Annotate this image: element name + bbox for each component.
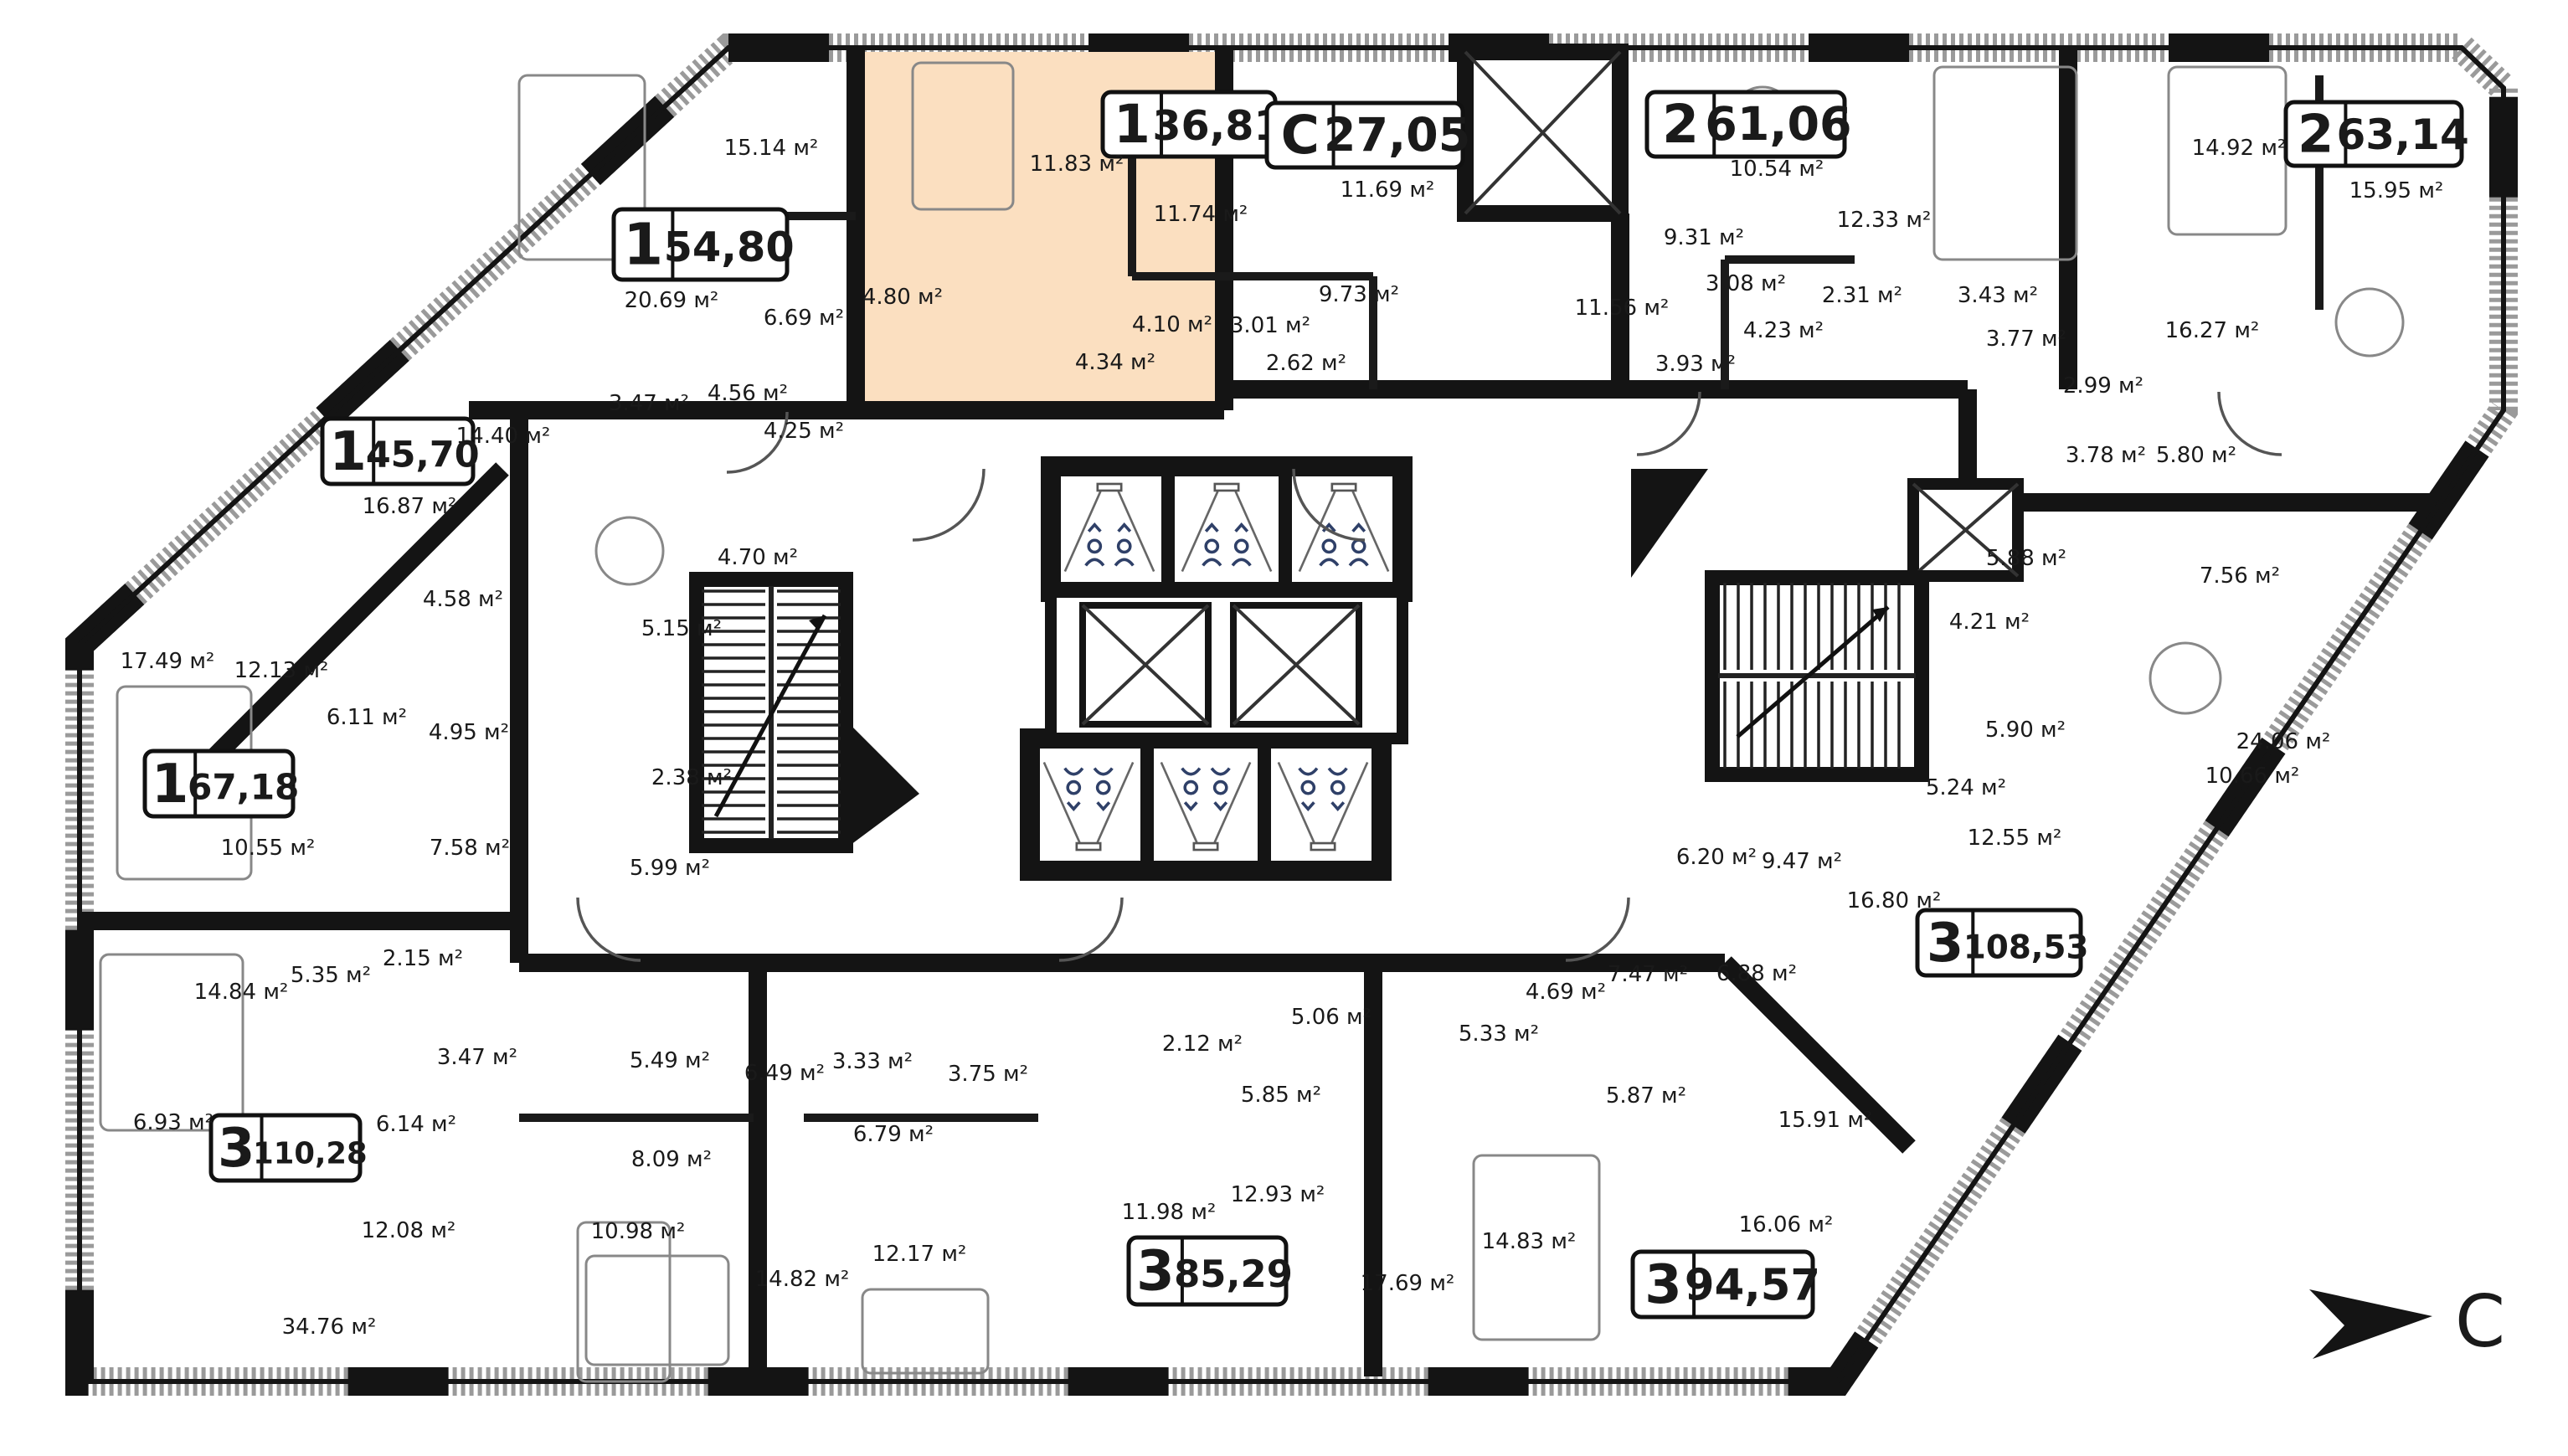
room-area-label: 14.40 м² — [456, 424, 551, 449]
room-area-label: 11.83 м² — [1030, 152, 1124, 177]
room-area-label: 4.25 м² — [764, 419, 844, 444]
room-area-label: 4.58 м² — [423, 587, 503, 612]
room-area-label: 12.08 м² — [362, 1218, 456, 1243]
room-area-label: 10.98 м² — [591, 1219, 686, 1244]
room-area-label: 11.98 м² — [1122, 1200, 1217, 1225]
room-area-label: 8.09 м² — [631, 1147, 712, 1172]
room-area-label: 17.49 м² — [121, 649, 215, 674]
room-area-label: 2.62 м² — [1266, 351, 1346, 376]
room-area-label: 16.27 м² — [2165, 318, 2260, 343]
room-area-label: 4.80 м² — [862, 285, 943, 310]
unit-type: 3 — [1644, 1254, 1682, 1316]
room-area-label: 3.33 м² — [832, 1049, 913, 1074]
unit-badge-61,06[interactable]: 261,06 — [1647, 92, 1852, 157]
room-area-label: 3.43 м² — [1958, 283, 2038, 308]
room-area-label: 3.75 м² — [948, 1062, 1028, 1087]
room-area-label: 5.15 м² — [641, 616, 722, 641]
unit-badge-108,53[interactable]: 3108,53 — [1917, 910, 2088, 975]
room-area-label: 2.15 м² — [383, 946, 463, 971]
unit-badge-110,28[interactable]: 3110,28 — [211, 1115, 368, 1181]
unit-area: 108,53 — [1963, 929, 2089, 967]
room-area-label: 5.87 м² — [1606, 1083, 1686, 1109]
unit-type: 3 — [218, 1118, 255, 1180]
room-area-label: 3.47 м² — [437, 1045, 517, 1070]
north-label: С — [2455, 1280, 2505, 1364]
room-area-label: 12.13 м² — [234, 658, 329, 683]
floor-plan-canvas: 154,80136,81С27,05261,06263,14145,70167,… — [0, 0, 2568, 1452]
room-area-label: 3.78 м² — [2066, 443, 2146, 468]
room-area-label: 12.93 м² — [1231, 1182, 1325, 1207]
room-area-label: 10.54 м² — [1730, 157, 1824, 182]
room-area-label: 4.34 м² — [1075, 350, 1155, 375]
unit-area: 94,57 — [1685, 1261, 1820, 1311]
room-area-label: 5.33 м² — [1459, 1021, 1539, 1047]
room-area-label: 2.12 м² — [1162, 1032, 1243, 1057]
unit-type: 2 — [1662, 93, 1699, 155]
room-area-label: 5.24 м² — [1926, 775, 2006, 800]
room-area-label: 12.55 м² — [1968, 826, 2062, 851]
room-area-label: 7.58 м² — [430, 836, 510, 861]
room-area-label: 6.20 м² — [1676, 845, 1757, 870]
room-area-label: 6.79 м² — [853, 1122, 934, 1147]
unit-area: 61,06 — [1705, 98, 1851, 152]
room-area-label: 5.80 м² — [2156, 443, 2236, 468]
unit-area: 36,81 — [1152, 101, 1282, 150]
unit-type: С — [1281, 104, 1320, 166]
room-area-label: 2.31 м² — [1822, 283, 1902, 308]
room-area-label: 5.06 м² — [1291, 1005, 1371, 1030]
unit-area: 110,28 — [253, 1137, 367, 1171]
room-area-label: 15.14 м² — [724, 136, 819, 161]
room-area-label: 15.91 м² — [1778, 1108, 1873, 1133]
room-area-label: 7.47 м² — [1608, 962, 1688, 987]
room-area-label: 3.01 м² — [1230, 313, 1310, 338]
unit-type: 1 — [1114, 93, 1150, 155]
room-area-label: 5.88 м² — [1986, 546, 2066, 571]
room-area-label: 3.93 м² — [1655, 352, 1736, 377]
room-area-label: 20.69 м² — [625, 288, 719, 313]
room-area-label: 34.76 м² — [282, 1315, 377, 1340]
room-area-label: 6.93 м² — [133, 1110, 214, 1135]
floor-plan: 154,80136,81С27,05261,06263,14145,70167,… — [0, 0, 2568, 1452]
room-area-label: 6.14 м² — [376, 1112, 456, 1137]
room-area-label: 3.08 м² — [1706, 271, 1786, 296]
room-area-label: 4.70 м² — [718, 545, 798, 570]
room-area-label: 9.73 м² — [1319, 282, 1399, 307]
unit-badge-67,18[interactable]: 167,18 — [145, 751, 299, 816]
room-area-label: 16.06 м² — [1739, 1212, 1834, 1237]
room-area-label: 6.88 м² — [1716, 961, 1797, 986]
room-area-label: 5.99 м² — [630, 856, 710, 881]
room-area-label: 5.49 м² — [630, 1048, 710, 1073]
room-area-label: 16.87 м² — [363, 494, 457, 519]
room-area-label: 4.21 м² — [1949, 610, 2030, 635]
staircase — [1712, 578, 1922, 774]
room-area-label: 15.95 м² — [2349, 178, 2444, 203]
room-area-label: 11.74 м² — [1154, 202, 1248, 227]
unit-type: 1 — [152, 754, 189, 815]
room-area-label: 24.06 м² — [2236, 729, 2331, 754]
room-area-label: 5.90 м² — [1985, 718, 2066, 743]
room-area-label: 11.56 м² — [1575, 296, 1670, 321]
unit-badge-63,14[interactable]: 263,14 — [2286, 102, 2469, 166]
north-arrow: С — [2309, 1280, 2505, 1364]
room-area-label: 3.47 м² — [609, 391, 689, 416]
unit-badge-54,80[interactable]: 154,80 — [614, 209, 795, 280]
unit-type: 3 — [1136, 1239, 1175, 1303]
unit-area: 54,80 — [664, 223, 795, 271]
unit-area: 67,18 — [188, 767, 299, 808]
room-area-label: 12.17 м² — [872, 1242, 967, 1267]
room-area-label: 9.47 м² — [1762, 849, 1842, 874]
unit-type: 1 — [329, 421, 367, 483]
room-area-label: 3.77 м² — [1986, 327, 2066, 352]
unit-type: 3 — [1927, 913, 1964, 975]
room-area-label: 6.69 м² — [764, 306, 844, 331]
room-area-label: 14.84 м² — [194, 980, 289, 1005]
unit-badge-36,81[interactable]: 136,81 — [1103, 92, 1283, 157]
unit-badge-85,29[interactable]: 385,29 — [1129, 1237, 1293, 1304]
room-area-label: 5.35 м² — [291, 963, 371, 988]
unit-area: 27,05 — [1324, 109, 1470, 162]
room-area-label: 2.99 м² — [2063, 373, 2143, 399]
unit-area: 85,29 — [1174, 1252, 1293, 1296]
room-area-label: 6.11 м² — [327, 705, 407, 730]
room-area-label: 12.33 м² — [1837, 208, 1932, 233]
room-area-label: 2.38 м² — [651, 765, 732, 790]
room-area-label: 4.69 м² — [1526, 980, 1606, 1005]
unit-badge-27,05[interactable]: С27,05 — [1267, 103, 1470, 167]
room-area-label: 10.66 м² — [2205, 764, 2300, 789]
room-area-label: 6.49 м² — [744, 1061, 825, 1086]
room-area-label: 4.10 м² — [1132, 312, 1212, 337]
room-area-label: 5.85 м² — [1241, 1083, 1321, 1108]
room-area-label: 14.82 м² — [755, 1267, 850, 1292]
room-area-label: 4.56 м² — [708, 381, 788, 406]
room-area-label: 17.69 м² — [1361, 1271, 1455, 1296]
room-area-label: 7.56 м² — [2200, 563, 2280, 589]
room-area-label: 14.83 м² — [1482, 1229, 1577, 1254]
room-area-label: 4.95 м² — [429, 720, 509, 745]
room-area-label: 10.55 м² — [221, 836, 316, 861]
room-area-label: 4.23 м² — [1743, 318, 1824, 343]
unit-type: 2 — [2298, 103, 2334, 164]
unit-type: 1 — [623, 212, 663, 279]
unit-badge-94,57[interactable]: 394,57 — [1633, 1252, 1820, 1317]
room-area-label: 11.69 м² — [1341, 177, 1435, 203]
unit-area: 63,14 — [2336, 111, 2468, 159]
room-area-label: 14.92 м² — [2192, 136, 2287, 161]
room-area-label: 9.31 м² — [1664, 225, 1744, 250]
room-area-label: 16.80 м² — [1847, 888, 1942, 913]
